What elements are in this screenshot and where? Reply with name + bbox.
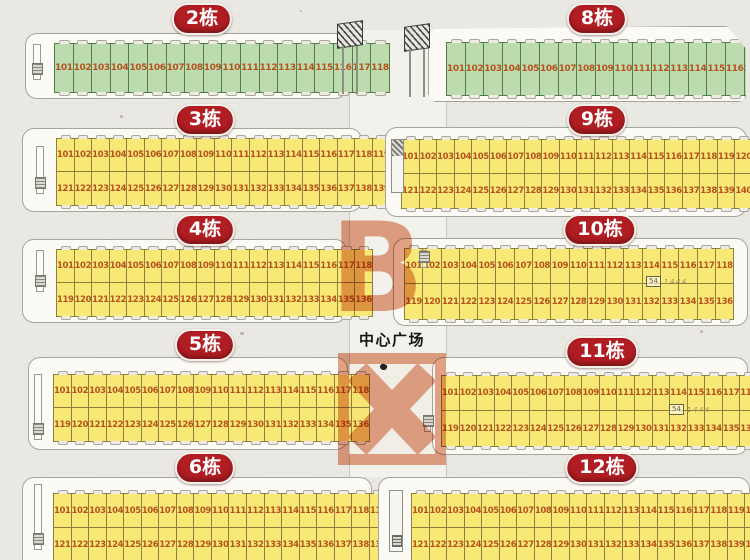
stall-unit: 111 [616,375,635,411]
gate-leg [356,46,358,94]
stall-unit: 102 [74,138,93,172]
stall-unit: 120 [734,139,750,174]
stall-unit: 113 [622,493,641,528]
stall-unit: 103 [441,248,460,284]
stall-unit: 102 [419,139,438,174]
stall-unit: 124 [106,527,125,560]
stall-unit: 121 [91,282,110,317]
stall-unit: 103 [476,375,495,411]
stall-unit: 111 [228,374,247,408]
building-11: 1011021031041051061071081091101111121131… [432,357,748,455]
stall-unit: 109 [541,139,560,174]
stall-unit: 108 [534,493,553,528]
stall-unit: 102 [71,493,90,528]
building-5-row-2: 1191201211221231241251261271281291301311… [53,408,335,442]
stall-unit: 126 [489,173,508,209]
utility-structure [391,139,404,193]
note-scribble-value: 1444 [664,278,688,286]
building-10-badge: 10栋 [563,214,636,246]
stall-unit: 112 [651,42,671,96]
building-11-handwritten-note: 541444 [669,404,711,415]
building-4-row-1: 1011021031041051061071081091101111121131… [56,249,332,283]
stall-unit: 107 [166,43,186,93]
stall-unit: 117 [682,139,701,174]
stall-unit: 105 [520,42,540,96]
stall-unit: 104 [454,139,473,174]
stall-unit: 102 [71,374,90,408]
stall-unit: 135 [647,173,666,209]
stall-unit: 115 [647,139,666,174]
stall-unit: 129 [193,527,212,560]
stall-unit: 121 [88,407,107,442]
stall-unit: 102 [74,249,93,283]
building-12: 1011021031041051061071081091101111121131… [378,477,750,560]
stall-unit: 112 [604,493,623,528]
stall-unit: 118 [699,139,718,174]
stall-unit: 115 [299,374,318,408]
stall-unit: 107 [514,248,533,284]
stall-unit: 119 [53,407,72,442]
stall-unit: 122 [494,410,513,447]
stall-unit: 126 [532,283,551,320]
stall-unit: 117 [697,248,716,284]
stall-unit: 131 [576,173,595,209]
stall-unit: 125 [514,283,533,320]
stall-unit: 127 [161,171,180,206]
stall-unit: 106 [147,43,167,93]
stall-unit: 129 [551,527,570,560]
stall-unit: 132 [594,173,613,209]
stall-unit: 116 [664,139,683,174]
building-5-badge: 5栋 [175,329,235,361]
building-9-row-2: 1211221231241251261271281291301311321331… [401,174,723,209]
building-2-row-1: 1011021031041051061071081091101111121131… [54,43,333,93]
stall-unit: 106 [144,138,163,172]
stall-unit: 123 [511,410,530,447]
building-6-stalls: 1011021031041051061071081091101111121131… [53,493,365,560]
stall-unit: 105 [481,493,500,528]
stall-unit: 114 [688,42,708,96]
stall-unit: 124 [144,282,163,317]
stall-unit: 102 [465,42,485,96]
stall-unit: 115 [302,249,321,283]
building-5-row-1: 1011021031041051061071081091101111121131… [53,374,335,408]
building-10: 1011021031041051061071081091101111121131… [393,238,748,326]
stall-unit: 110 [599,375,618,411]
stall-unit: 138 [699,173,718,209]
stall-unit: 103 [88,374,107,408]
building-3-badge: 3栋 [175,104,235,136]
stall-unit: 109 [193,493,212,528]
stall-unit: 123 [436,173,455,209]
stall-unit: 130 [249,282,268,317]
stall-unit: 110 [221,43,241,93]
stall-unit: 109 [193,374,212,408]
stall-unit: 125 [471,173,490,209]
stall-unit: 130 [246,407,265,442]
stall-unit: 124 [495,283,514,320]
stall-unit: 109 [550,248,569,284]
stall-unit: 132 [281,407,300,442]
stall-unit: 110 [569,493,588,528]
stall-unit: 112 [249,249,268,283]
stall-unit: 131 [264,407,283,442]
stall-unit: 130 [214,171,233,206]
stall-unit: 136 [316,527,335,560]
stall-unit: 126 [499,527,518,560]
scan-noise-dot [120,115,123,118]
stall-unit: 136 [674,527,693,560]
stall-unit: 127 [581,410,600,447]
gate-sign-icon [337,22,363,97]
stall-unit: 117 [722,375,741,411]
stall-unit: 110 [211,374,230,408]
building-8-row-1: 1011021031041051061071081091101111121131… [446,42,728,96]
stall-unit: 110 [214,138,233,172]
stall-unit: 116 [316,493,335,528]
stall-unit: 119 [717,139,736,174]
stall-unit: 134 [678,283,697,320]
stall-unit: 113 [277,43,297,93]
stall-unit: 102 [429,493,448,528]
stall-unit: 118 [354,138,373,172]
scan-noise-dot [240,332,244,335]
stall-unit: 103 [446,493,465,528]
stall-unit: 106 [141,493,160,528]
stall-unit: 125 [161,282,180,317]
stall-unit: 103 [88,493,107,528]
stall-unit: 102 [73,43,93,93]
stall-unit: 111 [576,139,595,174]
stall-unit: 127 [196,282,215,317]
stall-unit: 124 [454,173,473,209]
stall-unit: 136 [664,173,683,209]
central-plaza-label: 中心广场 [336,329,448,350]
stall-unit: 115 [299,493,318,528]
stall-unit: 117 [744,42,750,96]
building-6-row-1: 1011021031041051061071081091101111121131… [53,493,365,528]
stall-unit: 133 [622,527,641,560]
stall-unit: 117 [337,138,356,172]
stall-unit: 124 [464,527,483,560]
stall-unit: 128 [214,282,233,317]
stall-unit: 113 [669,42,689,96]
stall-unit: 114 [284,138,303,172]
stall-unit: 133 [302,282,321,317]
stall-unit: 121 [56,171,75,206]
stall-unit: 120 [744,493,750,528]
stall-unit: 111 [240,43,260,93]
watermark-x-icon [349,364,435,454]
stall-unit: 125 [481,527,500,560]
note-box-value: 54 [646,276,661,287]
stall-unit: 124 [141,407,160,442]
building-5-stalls: 1011021031041051061071081091101111121131… [53,374,335,442]
building-2-badge: 2栋 [172,3,232,35]
stall-unit: 112 [605,248,624,284]
stall-unit: 130 [569,527,588,560]
stall-unit: 111 [231,138,250,172]
stall-unit: 106 [539,42,559,96]
stall-unit: 114 [284,249,303,283]
stall-unit: 112 [634,375,653,411]
building-3-row-2: 1211221231241251261271281291301311321331… [56,172,359,206]
stall-unit: 104 [109,249,128,283]
stall-unit: 136 [739,410,750,447]
stall-unit: 128 [179,171,198,206]
stall-unit: 120 [422,283,441,320]
stall-unit: 126 [179,282,198,317]
building-6-badge: 6栋 [175,452,235,484]
stall-unit: 126 [564,410,583,447]
stall-unit: 107 [546,375,565,411]
stall-unit: 104 [106,374,125,408]
stall-unit: 111 [231,249,250,283]
stall-unit: 115 [302,138,321,172]
stall-unit: 135 [657,527,676,560]
building-3-row-1: 1011021031041051061071081091101111121131… [56,138,359,172]
stall-unit: 133 [687,410,706,447]
stall-unit: 116 [725,42,745,96]
building-10-handwritten-note: 541444 [646,276,688,287]
ramp-structure [36,146,44,194]
stall-unit: 131 [231,171,250,206]
stall-unit: 105 [471,139,490,174]
stall-unit: 113 [623,248,642,284]
stall-unit: 134 [281,527,300,560]
stall-unit: 119 [727,493,746,528]
stall-unit: 134 [629,173,648,209]
building-4-row-2: 1191201211221231241251261271281291301311… [56,283,332,317]
stall-unit: 106 [529,375,548,411]
ramp-structure [34,374,42,440]
building-12-badge: 12栋 [565,452,638,484]
stall-unit: 129 [616,410,635,447]
stall-unit: 106 [489,139,508,174]
stall-unit: 117 [692,493,711,528]
stall-unit: 114 [629,139,648,174]
stall-unit: 121 [476,410,495,447]
gate-flag-icon [337,20,363,49]
stall-unit: 120 [459,410,478,447]
stall-unit: 130 [559,173,578,209]
building-12-stalls: 1011021031041051061071081091101111121131… [411,493,724,560]
stall-unit: 133 [612,173,631,209]
stall-unit: 103 [483,42,503,96]
stall-unit: 129 [541,173,560,209]
stall-unit: 131 [652,410,671,447]
stall-unit: 118 [715,248,734,284]
stall-unit: 109 [203,43,223,93]
stall-unit: 112 [249,138,268,172]
building-4-badge: 4栋 [175,214,235,246]
stall-unit: 116 [319,138,338,172]
stall-unit: 107 [506,139,525,174]
stall-unit: 102 [459,375,478,411]
stall-unit: 101 [56,138,75,172]
stall-unit: 107 [161,249,180,283]
ramp-structure [36,250,44,292]
stall-unit: 107 [516,493,535,528]
building-9-badge: 9栋 [567,104,627,136]
stall-unit: 121 [441,283,460,320]
stall-unit: 112 [259,43,279,93]
stall-unit: 128 [176,527,195,560]
stall-unit: 113 [267,138,286,172]
stall-unit: 127 [550,283,569,320]
stall-unit: 123 [446,527,465,560]
building-9-stalls: 1011021031041051061071081091101111121131… [401,139,723,209]
building-4-stalls: 1011021031041051061071081091101111121131… [56,249,332,317]
stall-unit: 103 [91,138,110,172]
stall-unit: 127 [516,527,535,560]
building-8-stalls: 1011021031041051061071081091101111121131… [446,42,728,96]
stall-unit: 130 [634,410,653,447]
stall-unit: 124 [529,410,548,447]
stall-unit: 104 [110,43,130,93]
stall-unit: 136 [715,283,734,320]
building-11-badge: 11栋 [565,336,638,368]
stall-unit: 112 [246,493,265,528]
stall-unit: 110 [214,249,233,283]
stall-unit: 118 [370,43,390,93]
stall-unit: 131 [586,527,605,560]
building-5: 1011021031041051061071081091101111121131… [28,357,348,450]
stall-unit: 126 [144,171,163,206]
stall-unit: 128 [534,527,553,560]
stall-unit: 122 [459,283,478,320]
stall-unit: 127 [193,407,212,442]
stall-unit: 111 [228,493,247,528]
building-9: 1011021031041051061071081091101111121131… [385,127,747,217]
building-6: 1011021031041051061071081091101111121131… [22,477,372,560]
building-8-badge: 8栋 [567,3,627,35]
stall-unit: 121 [53,527,72,560]
stall-unit: 108 [564,375,583,411]
stall-unit: 135 [299,527,318,560]
stall-unit: 106 [144,249,163,283]
stall-unit: 133 [299,407,318,442]
gate-leg [423,49,425,97]
stall-unit: 109 [196,249,215,283]
stall-unit: 138 [351,527,370,560]
stall-unit: 108 [179,249,198,283]
scan-noise-dot [700,330,703,333]
stall-unit: 127 [158,527,177,560]
stall-unit: 133 [264,527,283,560]
stall-unit: 132 [604,527,623,560]
stall-unit: 106 [141,374,160,408]
building-9-row-1: 1011021031041051061071081091101111121131… [401,139,723,174]
note-scribble-value: 1444 [687,406,711,414]
stall-unit: 139 [727,527,746,560]
stall-unit: 118 [351,493,370,528]
stall-unit: 128 [569,283,588,320]
stall-unit: 116 [316,374,335,408]
stall-unit: 139 [717,173,736,209]
stall-unit: 108 [176,374,195,408]
stall-unit: 108 [576,42,596,96]
stall-unit: 122 [106,407,125,442]
stall-unit: 137 [682,173,701,209]
ramp-structure [34,484,42,550]
stall-unit: 104 [459,248,478,284]
stall-unit: 109 [551,493,570,528]
stall-unit: 128 [599,410,618,447]
stall-unit: 122 [71,527,90,560]
building-4: 1011021031041051061071081091101111121131… [22,239,347,323]
stall-unit: 105 [123,493,142,528]
stall-unit: 122 [109,282,128,317]
stall-unit: 114 [281,493,300,528]
stall-unit: 115 [314,43,334,93]
stall-unit: 129 [196,171,215,206]
stall-unit: 131 [228,527,247,560]
stall-unit: 105 [511,375,530,411]
stall-unit: 108 [532,248,551,284]
stall-unit: 125 [126,171,145,206]
stall-unit: 112 [594,139,613,174]
stall-unit: 107 [158,493,177,528]
building-12-row-2: 1211221231241251261271281291301311321331… [411,528,724,560]
stall-unit: 118 [709,493,728,528]
stall-unit: 107 [161,138,180,172]
stall-unit: 108 [184,43,204,93]
building-10-row-2: 1191201211221231241251261271281291301311… [404,284,734,320]
stall-unit: 130 [605,283,624,320]
stall-unit: 109 [581,375,600,411]
stall-unit: 128 [524,173,543,209]
stall-unit: 109 [196,138,215,172]
stall-unit: 123 [88,527,107,560]
stall-unit: 132 [246,527,265,560]
stall-unit: 132 [284,282,303,317]
stall-unit: 105 [128,43,148,93]
note-box-value: 54 [669,404,684,415]
stall-unit: 129 [228,407,247,442]
stall-unit: 128 [211,407,230,442]
stall-unit: 134 [704,410,723,447]
stall-unit: 132 [642,283,661,320]
stall-unit: 124 [109,171,128,206]
stall-unit: 126 [141,527,160,560]
gate-flag-icon [404,23,430,52]
gate-sign-icon [404,25,430,100]
stall-unit: 135 [697,283,716,320]
stall-unit: 122 [74,171,93,206]
stall-unit: 110 [559,139,578,174]
stall-unit: 125 [158,407,177,442]
stall-unit: 121 [411,527,430,560]
market-stall-map: B 中心广场 101102103104105106107108109110111… [0,0,750,560]
stall-unit: 126 [176,407,195,442]
stall-unit: 114 [639,493,658,528]
stall-unit: 106 [499,493,518,528]
stall-unit: 108 [176,493,195,528]
stall-unit: 104 [109,138,128,172]
stall-unit: 104 [494,375,513,411]
stall-unit: 118 [739,375,750,411]
stall-unit: 101 [411,493,430,528]
stall-unit: 115 [706,42,726,96]
stall-unit: 119 [56,282,75,317]
stall-unit: 111 [587,248,606,284]
gate-leg [342,46,344,94]
stall-unit: 113 [264,493,283,528]
stall-unit: 111 [632,42,652,96]
stall-unit: 125 [546,410,565,447]
stall-unit: 132 [669,410,688,447]
